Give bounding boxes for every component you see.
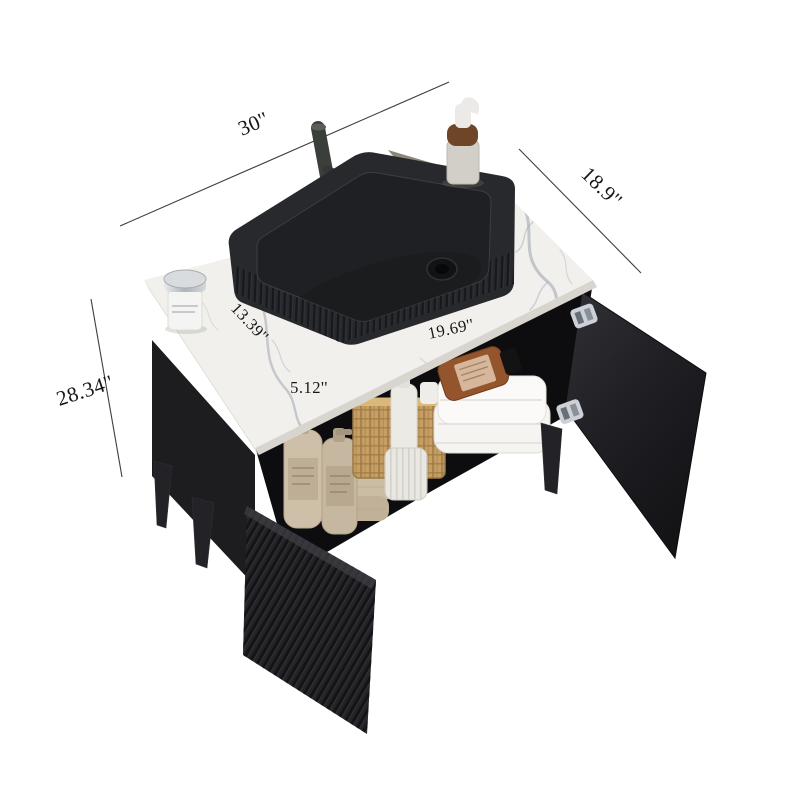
vanity-illustration: 30'' 18.9'' 28.34'' 13.39'' 19.69'' 5.12… [0, 0, 800, 800]
white-ribbed-jar [385, 448, 427, 500]
faucet-top-cap [311, 124, 326, 131]
sink-drain-hole [435, 264, 449, 274]
beige-pump-bottle-2 [322, 428, 357, 534]
cream-jar [164, 270, 207, 334]
white-jar-in-basket [420, 382, 438, 404]
cabinet-leg-back-left [154, 461, 172, 528]
cabinet-leg-front-right [541, 423, 562, 494]
dimension-label-top-depth: 18.9'' [577, 162, 628, 212]
right-door-open [555, 292, 706, 558]
soap-dispenser [442, 97, 484, 188]
dimension-label-overall-height: 28.34'' [53, 370, 116, 411]
cream-jar-lid-top [164, 270, 206, 288]
cabinet-leg-mid-left [192, 497, 214, 568]
dimension-label-counter-front: 5.12'' [290, 378, 328, 397]
dimension-label-top-width: 30'' [235, 107, 273, 141]
product-dimension-image: 30'' 18.9'' 28.34'' 13.39'' 19.69'' 5.12… [0, 0, 800, 800]
